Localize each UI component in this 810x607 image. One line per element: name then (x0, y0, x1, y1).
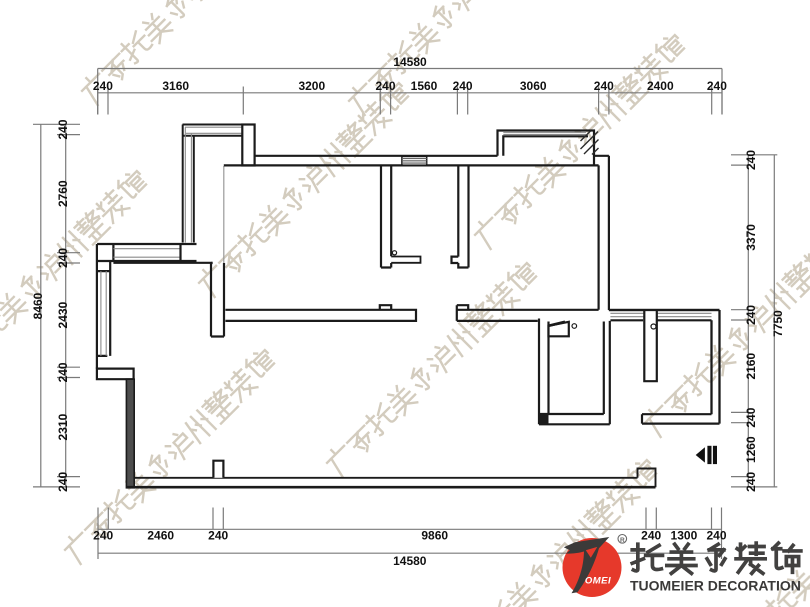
svg-text:2400: 2400 (647, 79, 674, 93)
svg-text:240: 240 (93, 79, 113, 93)
svg-text:9860: 9860 (421, 529, 448, 543)
svg-text:7750: 7750 (771, 310, 785, 337)
svg-text:240: 240 (744, 407, 758, 427)
svg-text:3060: 3060 (520, 79, 547, 93)
svg-text:240: 240 (744, 150, 758, 170)
svg-text:240: 240 (594, 79, 614, 93)
svg-text:240: 240 (641, 529, 661, 543)
svg-text:2310: 2310 (56, 413, 70, 440)
svg-text:14580: 14580 (393, 554, 427, 568)
svg-text:240: 240 (56, 471, 70, 491)
svg-text:240: 240 (56, 362, 70, 382)
svg-text:R: R (620, 537, 625, 544)
svg-text:OMEI: OMEI (585, 576, 611, 587)
svg-text:TUOMEIER DECORATION: TUOMEIER DECORATION (630, 578, 801, 594)
svg-text:240: 240 (375, 79, 395, 93)
svg-text:2760: 2760 (56, 180, 70, 207)
svg-text:240: 240 (706, 529, 726, 543)
svg-text:8460: 8460 (31, 292, 45, 319)
svg-text:3370: 3370 (744, 224, 758, 251)
svg-text:240: 240 (56, 119, 70, 139)
svg-text:240: 240 (744, 471, 758, 491)
svg-text:240: 240 (56, 248, 70, 268)
svg-text:1260: 1260 (744, 436, 758, 463)
svg-text:3160: 3160 (162, 79, 189, 93)
svg-text:240: 240 (744, 305, 758, 325)
svg-text:2160: 2160 (744, 353, 758, 380)
svg-text:240: 240 (208, 529, 228, 543)
svg-text:2460: 2460 (147, 529, 174, 543)
svg-text:2430: 2430 (56, 301, 70, 328)
svg-text:1560: 1560 (411, 79, 438, 93)
svg-text:14580: 14580 (393, 55, 427, 69)
svg-text:240: 240 (707, 79, 727, 93)
svg-text:240: 240 (93, 529, 113, 543)
svg-text:3200: 3200 (298, 79, 325, 93)
svg-text:240: 240 (453, 79, 473, 93)
svg-text:1300: 1300 (671, 529, 698, 543)
